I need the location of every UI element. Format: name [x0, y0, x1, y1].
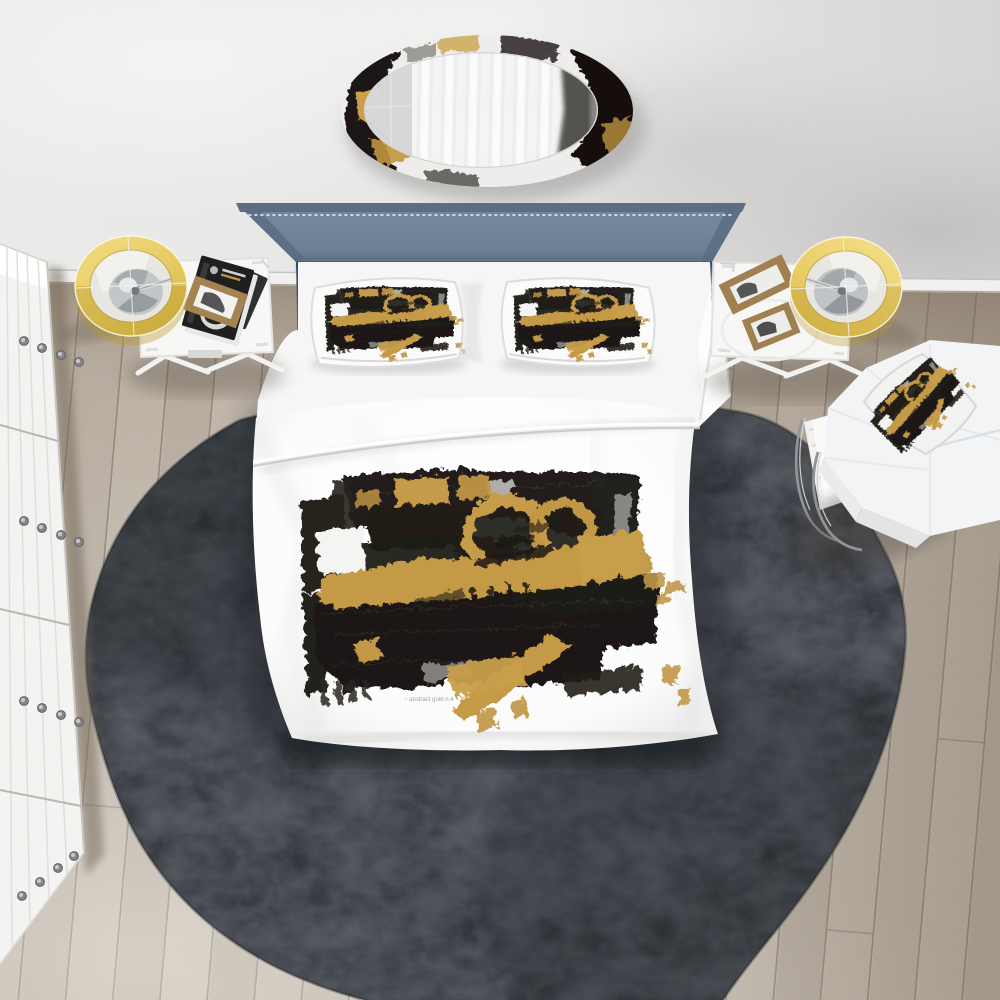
svg-text:~ abstract gold n.4: ~ abstract gold n.4	[404, 697, 454, 703]
